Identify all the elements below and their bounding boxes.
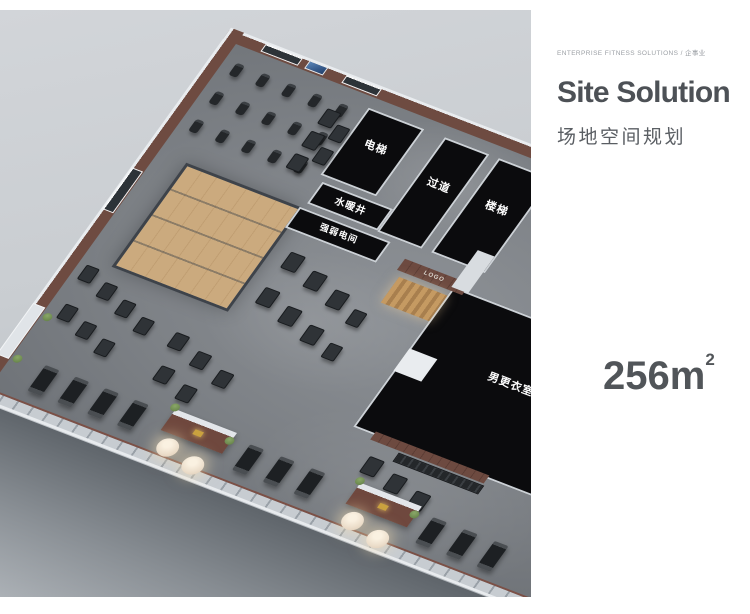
- page-subtitle: 场地空间规划: [557, 122, 686, 149]
- area-exponent: 2: [705, 350, 714, 369]
- panel-caption: ENTERPRISE FITNESS SOLUTIONS / 企事业: [557, 47, 706, 57]
- floor-plan-render: 电梯水暖井强弱电间过道楼梯男更衣室LOGO: [0, 10, 531, 597]
- floor-plan-scene: [235, 44, 237, 45]
- presentation-slide: 电梯水暖井强弱电间过道楼梯男更衣室LOGO ENTERPRISE FITNESS…: [0, 0, 750, 614]
- info-panel: ENTERPRISE FITNESS SOLUTIONS / 企事业 Site …: [531, 0, 750, 614]
- area-unit: m: [670, 354, 706, 398]
- page-title: Site Solution: [557, 76, 730, 110]
- area-value: 256: [603, 354, 670, 398]
- area-figure: 256m2: [603, 354, 715, 399]
